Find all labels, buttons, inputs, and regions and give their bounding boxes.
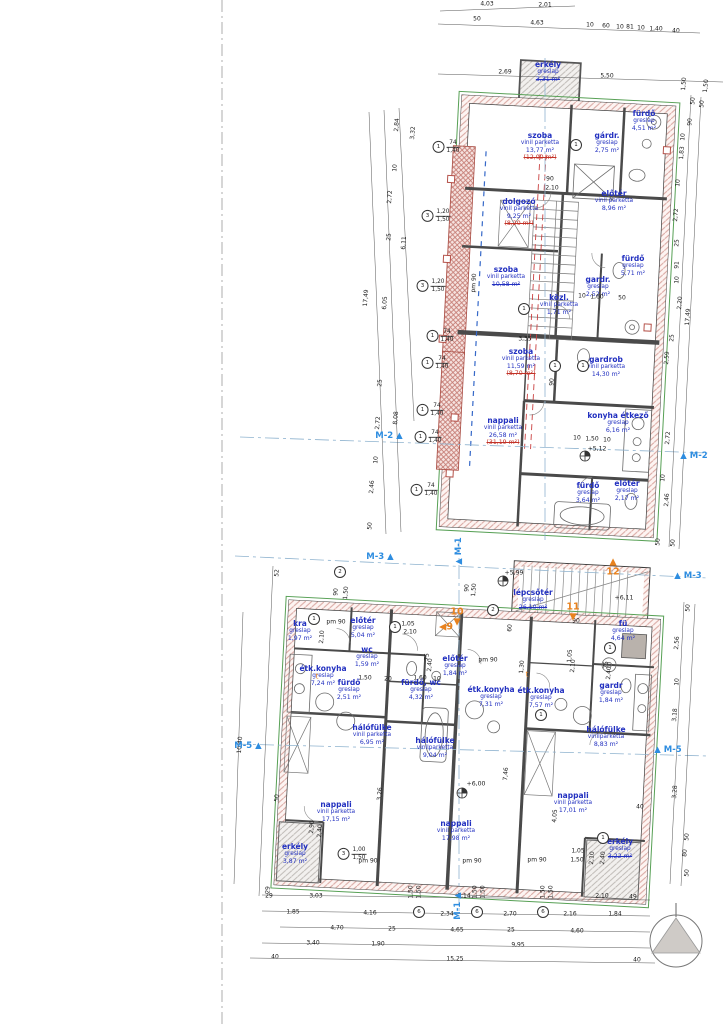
balcony-right bbox=[584, 840, 641, 900]
lower-building bbox=[271, 549, 666, 908]
floor-plan-sheet: erkély greslap 3,31 m² szoba vinil parke… bbox=[0, 0, 723, 1024]
north-arrow bbox=[650, 903, 702, 967]
plan-linework bbox=[0, 0, 723, 1024]
balcony-left bbox=[276, 822, 321, 883]
upper-building bbox=[429, 57, 681, 542]
